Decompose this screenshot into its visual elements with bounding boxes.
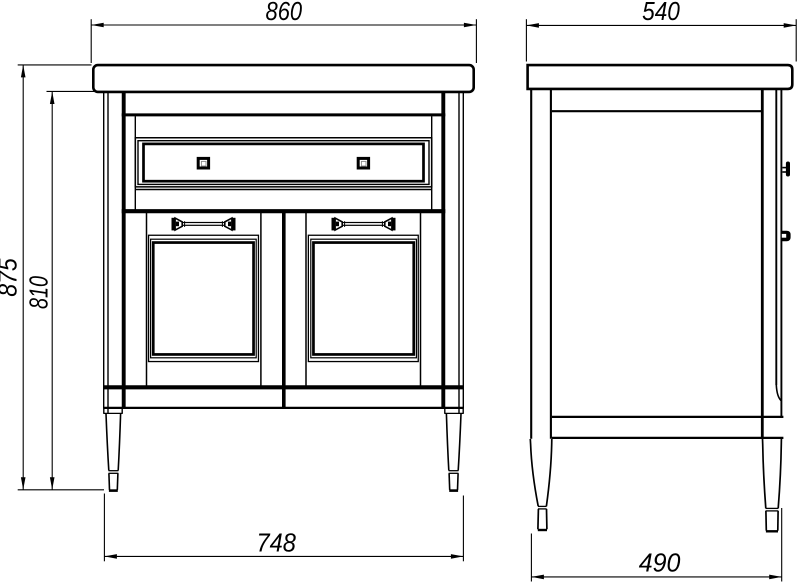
svg-text:748: 748: [257, 528, 297, 558]
svg-text:490: 490: [639, 547, 681, 577]
svg-text:860: 860: [266, 0, 303, 26]
svg-text:540: 540: [642, 0, 680, 26]
svg-text:810: 810: [24, 276, 54, 309]
svg-text:875: 875: [0, 258, 22, 297]
